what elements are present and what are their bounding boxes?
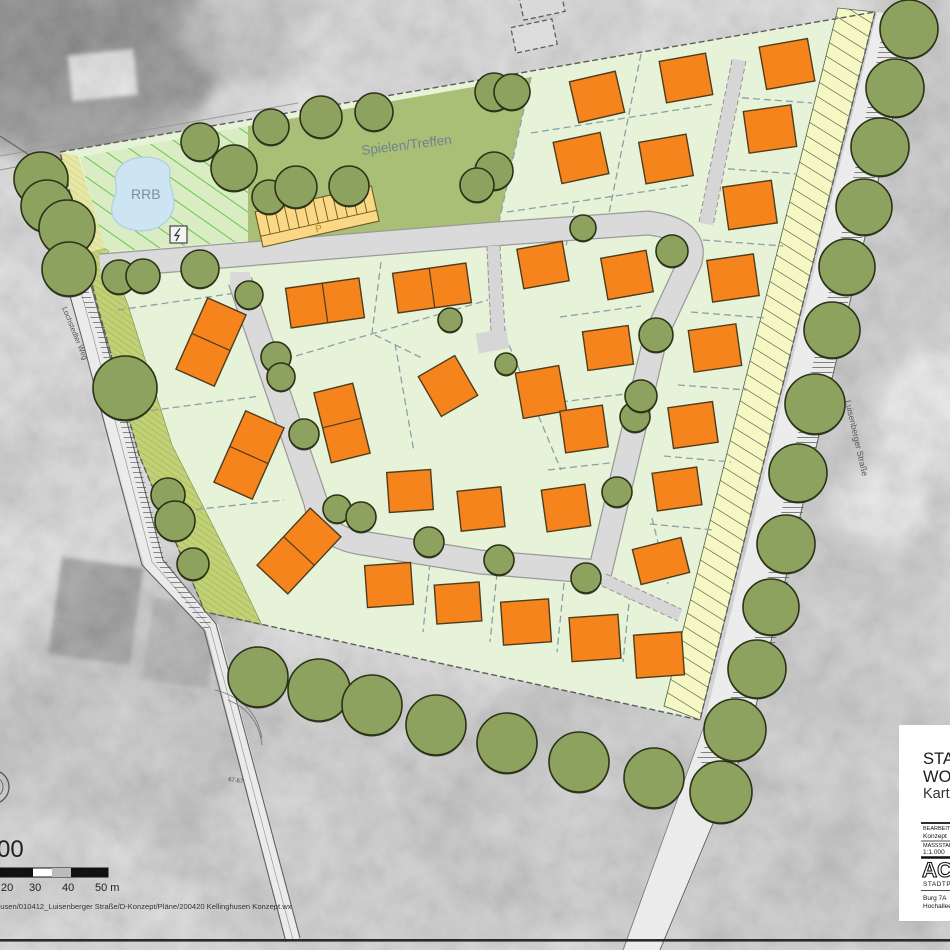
svg-text:RRB: RRB bbox=[131, 186, 161, 202]
svg-text:WOHNG: WOHNG bbox=[923, 768, 950, 786]
svg-text:20: 20 bbox=[1, 882, 13, 894]
svg-text:STADTPL: STADTPL bbox=[923, 881, 950, 888]
svg-text:40: 40 bbox=[62, 882, 74, 894]
svg-text:50 m: 50 m bbox=[95, 882, 119, 894]
svg-text:Burg 7A: Burg 7A bbox=[923, 895, 947, 902]
svg-text:Hochallee: Hochallee bbox=[923, 903, 950, 910]
svg-text:husen/010412_Luisenberger Stra: husen/010412_Luisenberger Straße/D-Konze… bbox=[0, 902, 292, 911]
svg-text:Konzept: Konzept bbox=[923, 833, 947, 840]
svg-text:STADT: STADT bbox=[923, 750, 950, 768]
svg-text:30: 30 bbox=[29, 882, 41, 894]
svg-text:00: 00 bbox=[0, 836, 24, 863]
svg-text:1:1.000: 1:1.000 bbox=[923, 849, 945, 856]
svg-text:Karte: Karte bbox=[923, 786, 950, 802]
svg-text:BEARBEITUNG: BEARBEITUNG bbox=[923, 826, 950, 832]
svg-text:AC: AC bbox=[922, 859, 950, 882]
